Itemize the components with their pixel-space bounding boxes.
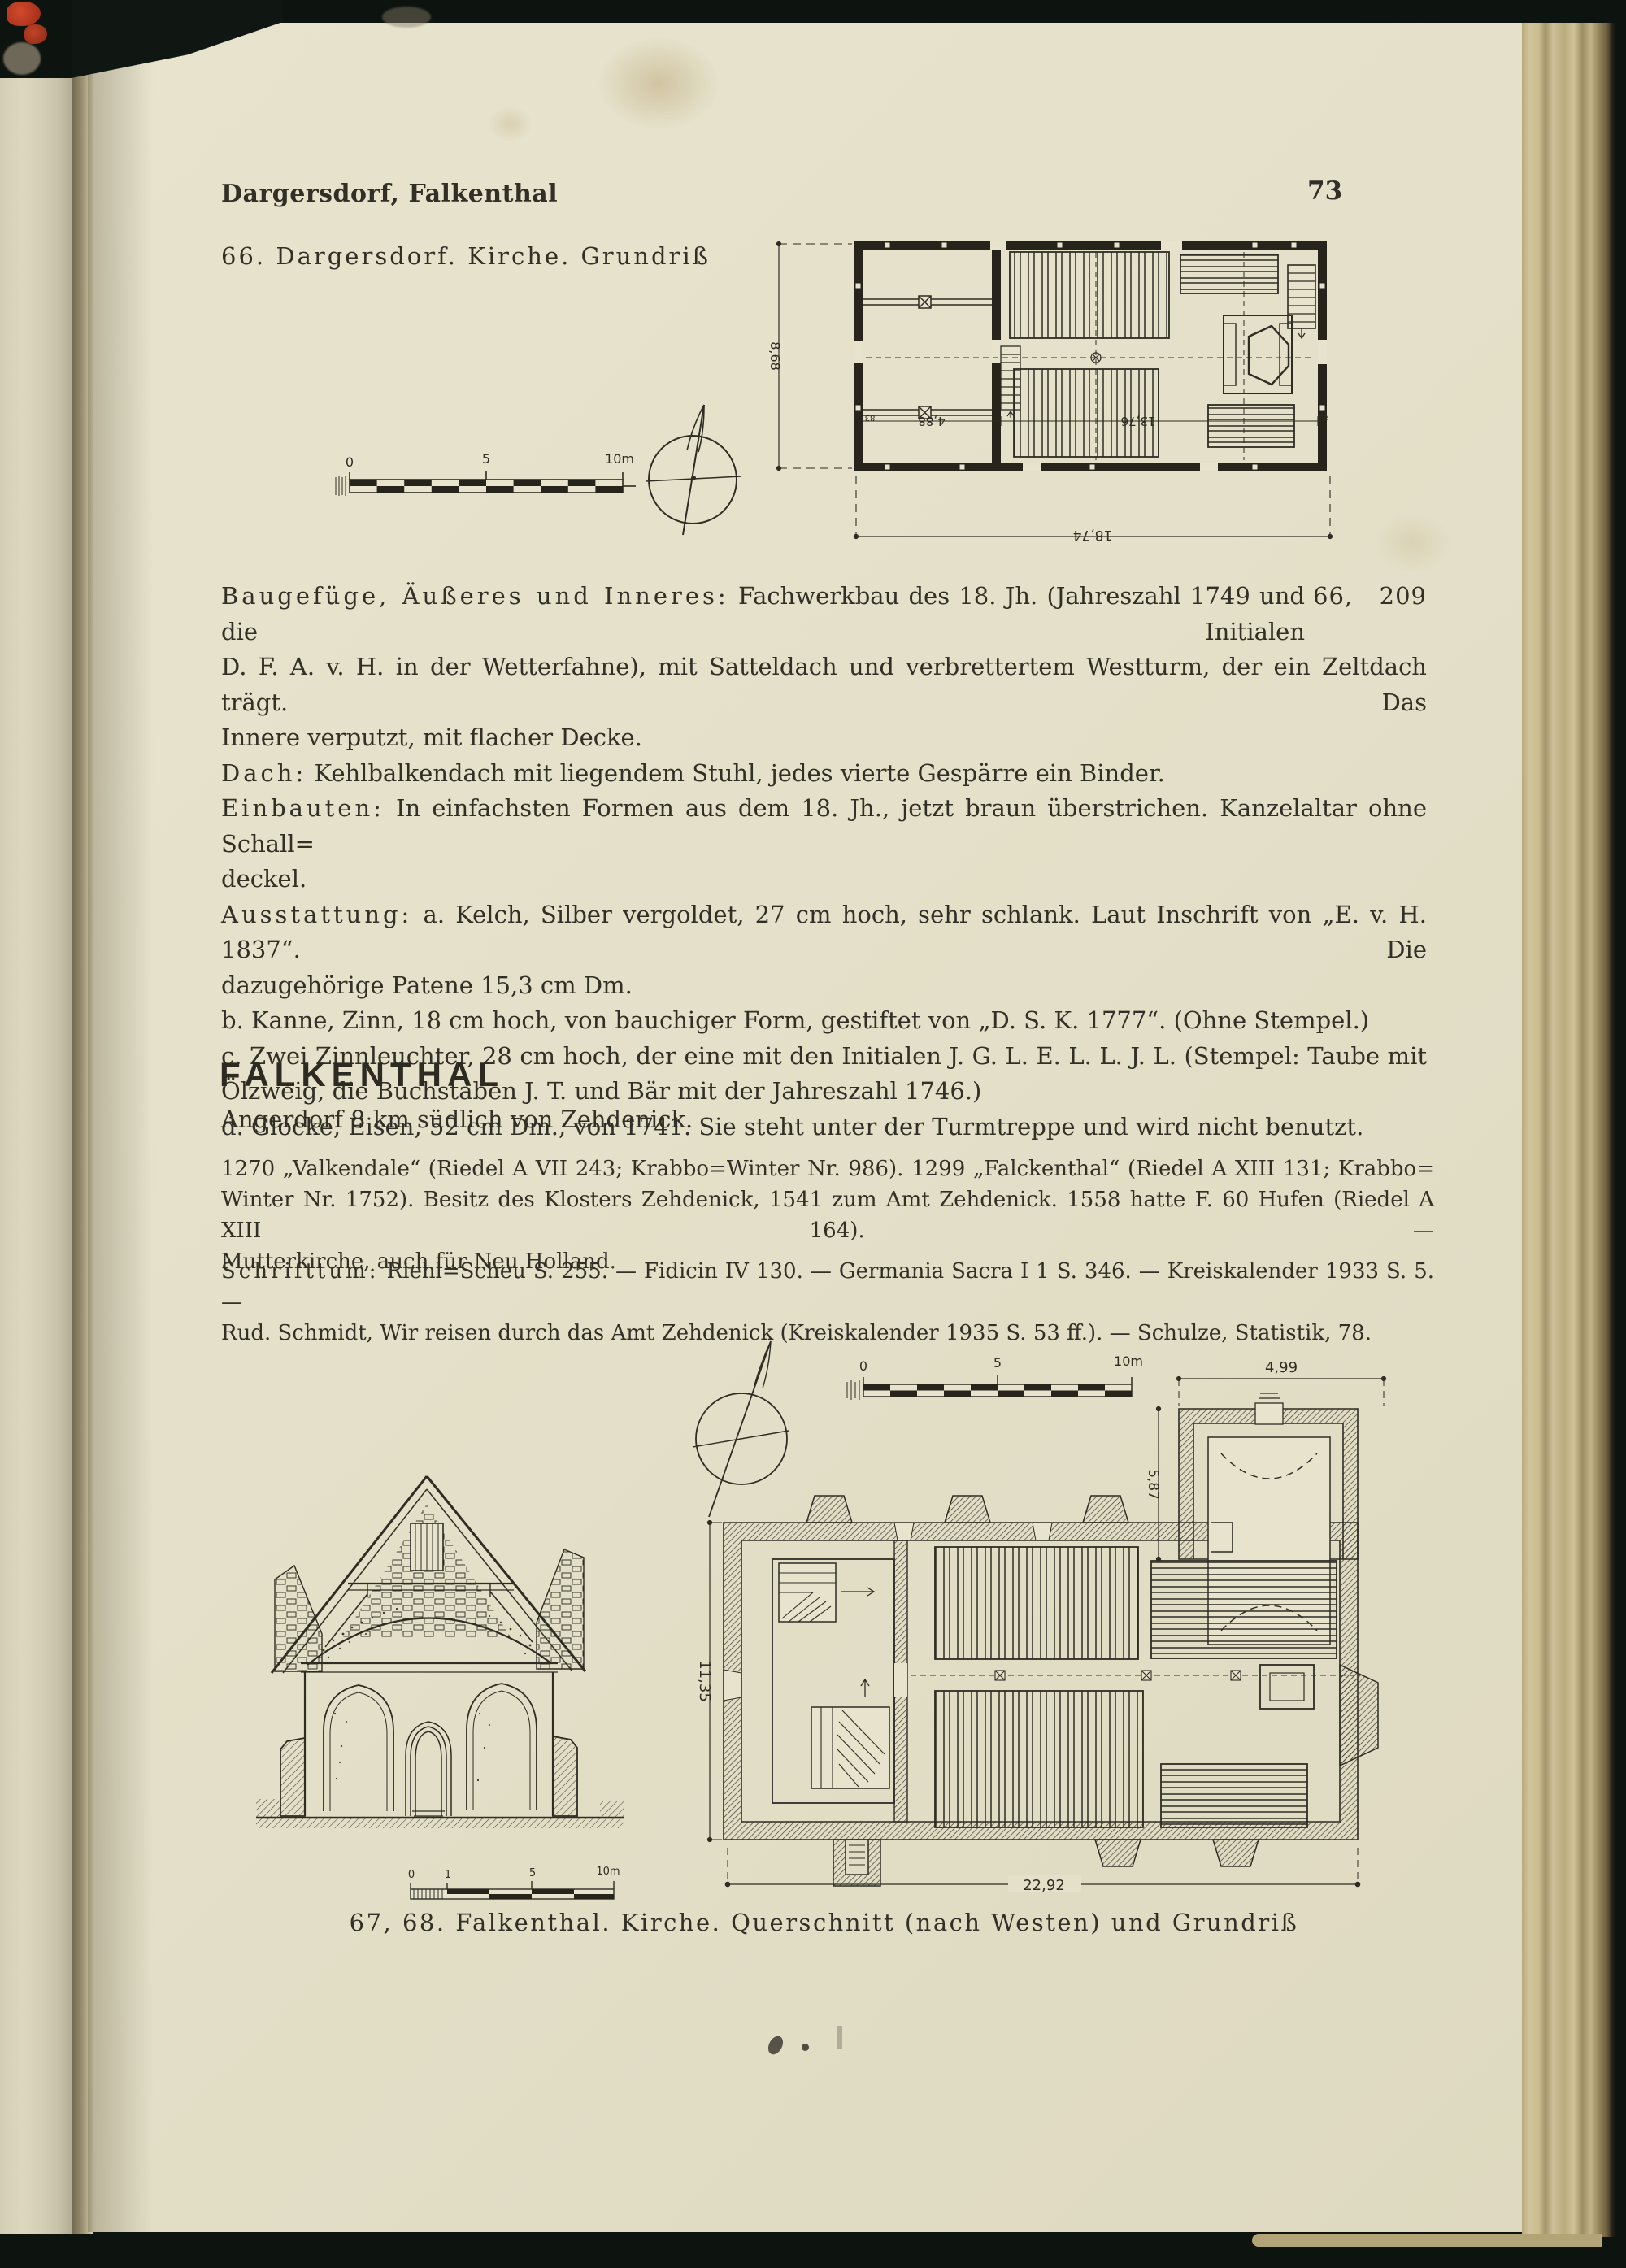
scanned-book-page: Dargersdorf, Falkenthal 73 66. Dargersdo… — [0, 0, 1626, 2268]
window-right — [467, 1684, 537, 1810]
compass-north-icon — [693, 1341, 789, 1517]
text-line: 1270 „Valkendale“ (Riedel A VII 243; Kra… — [221, 1154, 1434, 1184]
buttress-right — [553, 1736, 577, 1816]
south-porch — [833, 1840, 880, 1886]
text-line: Winter Nr. 1752). Besitz des Klosters Ze… — [221, 1184, 1434, 1246]
dim-11-35: 11,35 — [696, 1660, 713, 1702]
figure66-floor-plan: 4,88 13,76 83 83 8,68 18,74 — [748, 218, 1366, 567]
scale-bar — [336, 471, 636, 496]
pew-block-north — [1010, 252, 1169, 338]
text-line: D. F. A. v. H. in der Wetterfahne), mit … — [221, 650, 1427, 720]
ink-smudge — [837, 2026, 842, 2049]
red-paint-mark — [24, 24, 47, 44]
paper-stain — [1374, 512, 1451, 573]
dim-wall-right: 83 — [1318, 413, 1328, 422]
text-line: Schrifttum: Riehl=Scheu S. 255. — Fidici… — [221, 1256, 1434, 1318]
pew-block-south — [935, 1691, 1143, 1827]
dim-13-76: 13,76 — [1121, 414, 1156, 428]
lead-in: Ausstattung: — [221, 901, 412, 928]
figure66-caption: 66. Dargersdorf. Kirche. Grundriß — [221, 242, 711, 270]
compass-north-icon — [646, 405, 741, 535]
lead-in: Dach: — [221, 759, 307, 787]
figure66-scale-and-compass: 0 5 10m — [325, 374, 748, 577]
text-line: Baugefüge, Äußeres und Inneres: Fachwerk… — [221, 579, 1427, 650]
paper-stain — [598, 37, 720, 130]
running-head: Dargersdorf, Falkenthal — [221, 180, 558, 208]
altar — [1260, 1665, 1314, 1709]
pew-block-south — [1014, 369, 1159, 457]
section-heading-falkenthal: FALKENTHAL — [220, 1055, 504, 1094]
pew-block-northeast — [1151, 1561, 1337, 1658]
headband-tuft — [3, 42, 41, 75]
pew-block-southeast — [1161, 1764, 1307, 1827]
plan-scale-10m: 10m — [1114, 1353, 1143, 1369]
text-line: deckel. — [221, 862, 1427, 897]
figure6768-caption: 67, 68. Falkenthal. Kirche. Querschnitt … — [221, 1909, 1427, 1936]
dim-22-92: 22,92 — [1023, 1877, 1065, 1894]
plan-scale-0: 0 — [859, 1358, 867, 1374]
dim-wall-left: 83 — [865, 413, 876, 422]
figure-margin-reference: 66, 209 — [1313, 579, 1427, 615]
scale-10m-label: 10m — [605, 451, 634, 467]
window-left — [324, 1685, 393, 1811]
pew-block-northwest — [935, 1547, 1138, 1659]
headband-tuft — [382, 7, 431, 28]
tower-width-dimension — [1176, 1376, 1385, 1406]
wall-shoulder-right — [537, 1549, 584, 1669]
section-scale-5: 5 — [529, 1867, 536, 1879]
bench-southeast — [1208, 405, 1294, 447]
dim-4-99: 4,99 — [1265, 1359, 1298, 1376]
figure68-floor-plan: 0 5 10m — [691, 1315, 1390, 1909]
pulpit-altar — [1224, 315, 1292, 393]
text-line: Dach: Kehlbalkendach mit liegendem Stuhl… — [221, 756, 1427, 792]
portal — [406, 1722, 451, 1816]
scale-0-label: 0 — [346, 454, 354, 470]
red-paint-mark — [7, 2, 41, 26]
section-scale-0: 0 — [408, 1869, 415, 1881]
ink-smudge — [802, 2044, 809, 2051]
page-number: 73 — [1307, 176, 1342, 206]
dim-4-88: 4,88 — [918, 414, 945, 428]
falkenthal-subtitle: Angerdorf 8 km südlich von Zehdenick. — [221, 1106, 693, 1133]
section-scale-bar — [411, 1881, 614, 1899]
section-scale-10: 10m — [596, 1866, 620, 1878]
plan-scale-bar — [847, 1375, 1132, 1400]
plan-scale-5: 5 — [993, 1355, 1002, 1371]
text-line: Einbauten: In einfachsten Formen aus dem… — [221, 791, 1427, 862]
section-scale-1: 1 — [445, 1869, 451, 1881]
text-line: b. Kanne, Zinn, 18 cm hoch, von bauchige… — [221, 1003, 1427, 1039]
lead-in: Baugefüge, Äußeres und Inneres: — [221, 582, 729, 610]
lead-in: Einbauten: — [221, 794, 385, 822]
text-line: Ausstattung: a. Kelch, Silber vergoldet,… — [221, 897, 1427, 968]
book-fore-edge — [1522, 23, 1616, 2237]
gallery-bench-north — [1180, 254, 1278, 293]
scale-5-label: 5 — [482, 451, 490, 467]
lead-in: Schrifttum: — [221, 1259, 380, 1284]
text-line: dazugehörige Patene 15,3 cm Dm. — [221, 968, 1427, 1004]
winding-stair-north — [779, 1563, 874, 1622]
gable-window — [411, 1523, 443, 1571]
text-line: Innere verputzt, mit flacher Decke. — [221, 720, 1427, 756]
dim-8-68: 8,68 — [767, 341, 783, 371]
height-dimension — [776, 241, 852, 470]
dim-18-74: 18,74 — [1073, 527, 1113, 543]
winding-stair-south — [811, 1679, 889, 1788]
buttress-left — [280, 1738, 305, 1816]
figure67-cross-section: 0 1 5 10m — [244, 1429, 650, 1909]
gutter-shadow — [88, 23, 153, 2232]
paper-stain — [488, 106, 533, 142]
nave-walls — [301, 1663, 558, 1816]
under-page-edge — [1252, 2234, 1602, 2247]
facing-page-edge — [0, 78, 72, 2234]
dim-5-87: 5,87 — [1145, 1469, 1161, 1500]
